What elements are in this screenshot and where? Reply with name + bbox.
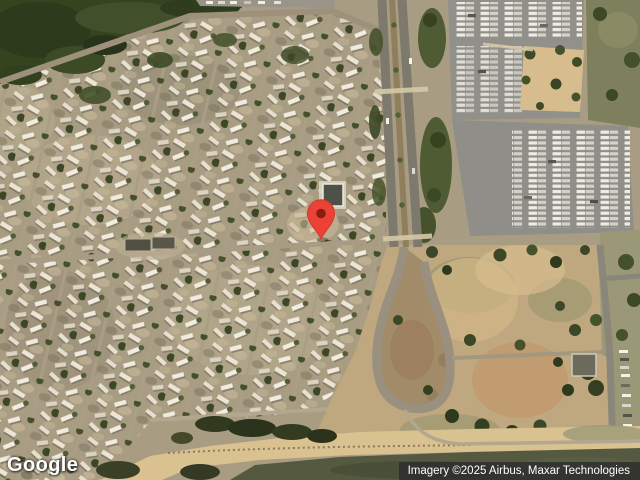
satellite-imagery bbox=[0, 0, 640, 480]
shore-building bbox=[572, 354, 596, 376]
google-logo[interactable]: Google bbox=[7, 454, 78, 477]
attribution-bar: Imagery ©2025 Airbus, Maxar Technologies bbox=[399, 462, 640, 480]
attribution-text: Imagery ©2025 Airbus, Maxar Technologies bbox=[408, 465, 630, 477]
map-viewport[interactable]: Google Imagery ©2025 Airbus, Maxar Techn… bbox=[0, 0, 640, 480]
